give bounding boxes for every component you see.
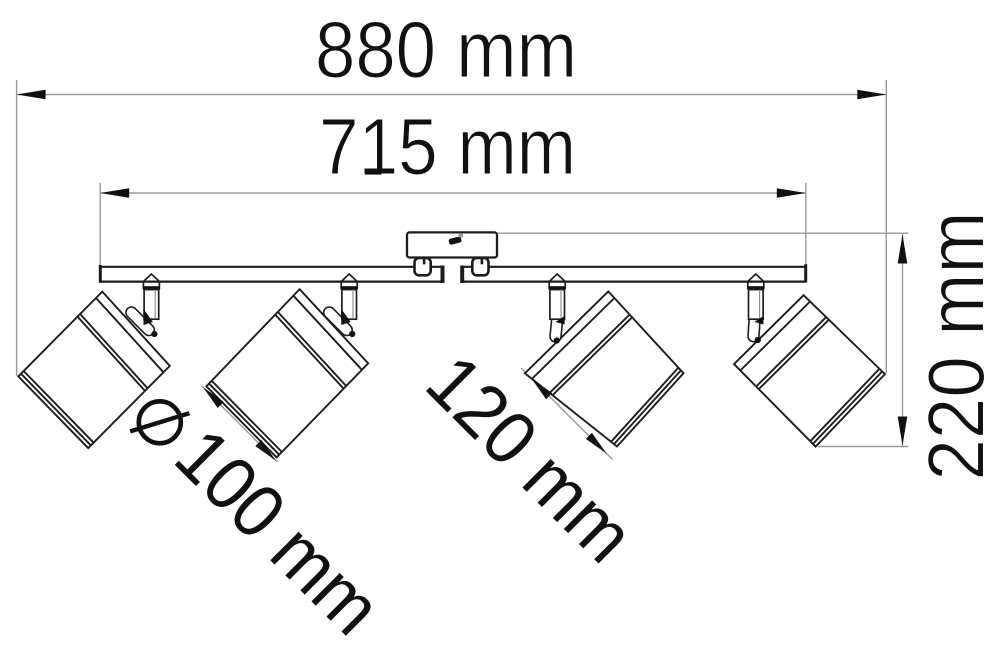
svg-text:880 mm: 880 mm [315, 5, 577, 94]
svg-text:220 mm: 220 mm [912, 212, 1000, 481]
svg-text:715 mm: 715 mm [319, 102, 576, 191]
